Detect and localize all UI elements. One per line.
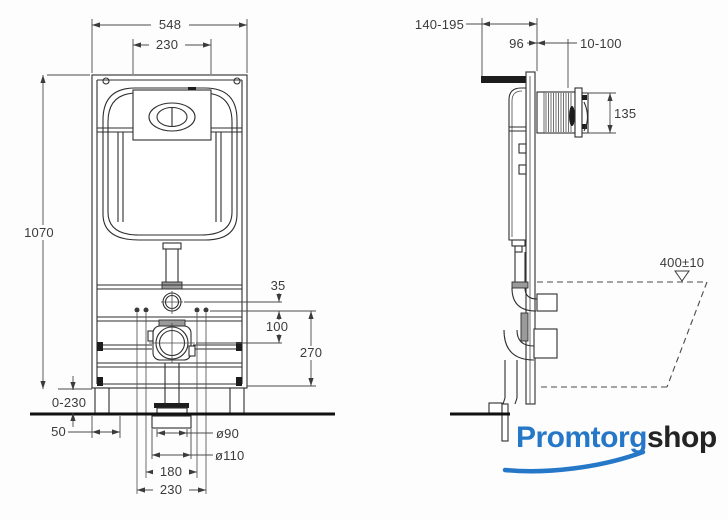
technical-drawing: 548 230 1070 35 [0,0,728,520]
level-triangle-icon [675,271,689,281]
brand-wordmark: Promtorgshop [516,421,717,454]
dim-frame-depth: 96 [509,36,537,51]
brand-primary-text: Promtorg [516,421,647,454]
access-shaft [537,92,575,133]
side-offset-label: 50 [51,424,66,439]
frame-depth-label: 96 [509,36,524,51]
bolt-spacing-inner-label: 180 [160,464,182,479]
dim-plate-height: 135 [583,93,636,133]
dim-plate-width: 230 [133,37,211,74]
cistern-side [509,88,526,240]
leg-adjustment-label: 0-230 [52,395,86,410]
frame-height-label: 1070 [24,225,54,240]
logo-swoosh [505,452,643,471]
flush-plate-side [575,88,588,137]
side-view: 400±10 140-195 96 10-100 [415,17,707,441]
bowl-height-label: 400±10 [660,255,705,270]
inlet-to-drain-label: 100 [266,319,288,334]
bolt-spacing-outer-label: 230 [160,482,182,497]
side-foot [489,403,508,441]
dim-bolt-spacing-inner: 180 [146,464,197,479]
drain-to-bottom-label: 270 [300,345,322,360]
brand-logo: Promtorgshop [505,421,717,471]
dim-side-offset: 50 [51,416,120,439]
dim-frame-height: 1070 [18,75,92,389]
plate-height-label: 135 [614,106,636,121]
front-view: 548 230 1070 35 [18,17,335,497]
drain-diameter-label: ø90 [216,426,239,441]
threaded-rod [521,313,528,341]
bowl-outline-dashed [537,282,707,387]
dim-wall-finish: 10-100 [537,36,622,88]
dim-bolt-spacing-outer: 230 [137,482,206,497]
brand-secondary-text: shop [647,421,717,454]
dim-bowl-height: 400±10 [660,255,705,281]
wall-bracket [481,76,526,83]
install-depth-label: 140-195 [415,17,464,32]
outlet-diameter-label: ø110 [215,448,244,463]
inlet-offset-label: 35 [271,278,286,293]
frame-width-label: 548 [159,17,181,32]
dim-leg-adjustment: 0-230 [52,376,86,427]
wall-finish-label: 10-100 [580,36,622,51]
plate-width-label: 230 [156,37,178,52]
